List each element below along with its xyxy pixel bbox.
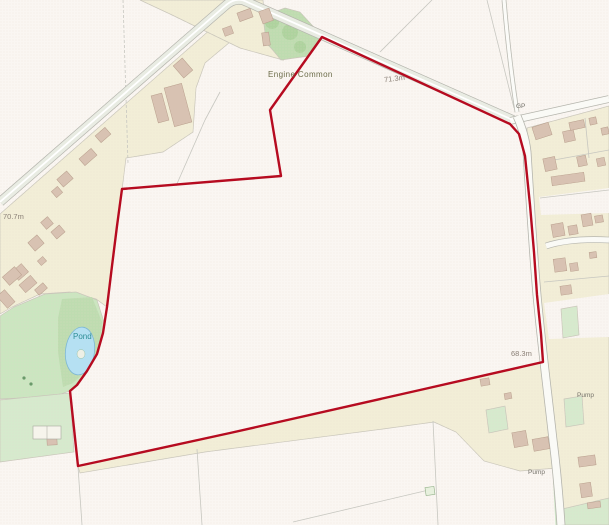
- pond-island: [77, 350, 85, 359]
- map-canvas: Engine Common 71.3m GP 70.7m Pond 68.3m …: [0, 0, 609, 525]
- tree-symbol: [22, 376, 25, 379]
- tree-symbol: [29, 382, 32, 385]
- shed: [425, 486, 435, 495]
- glasshouse: [33, 426, 61, 439]
- map-graphics: [0, 0, 609, 525]
